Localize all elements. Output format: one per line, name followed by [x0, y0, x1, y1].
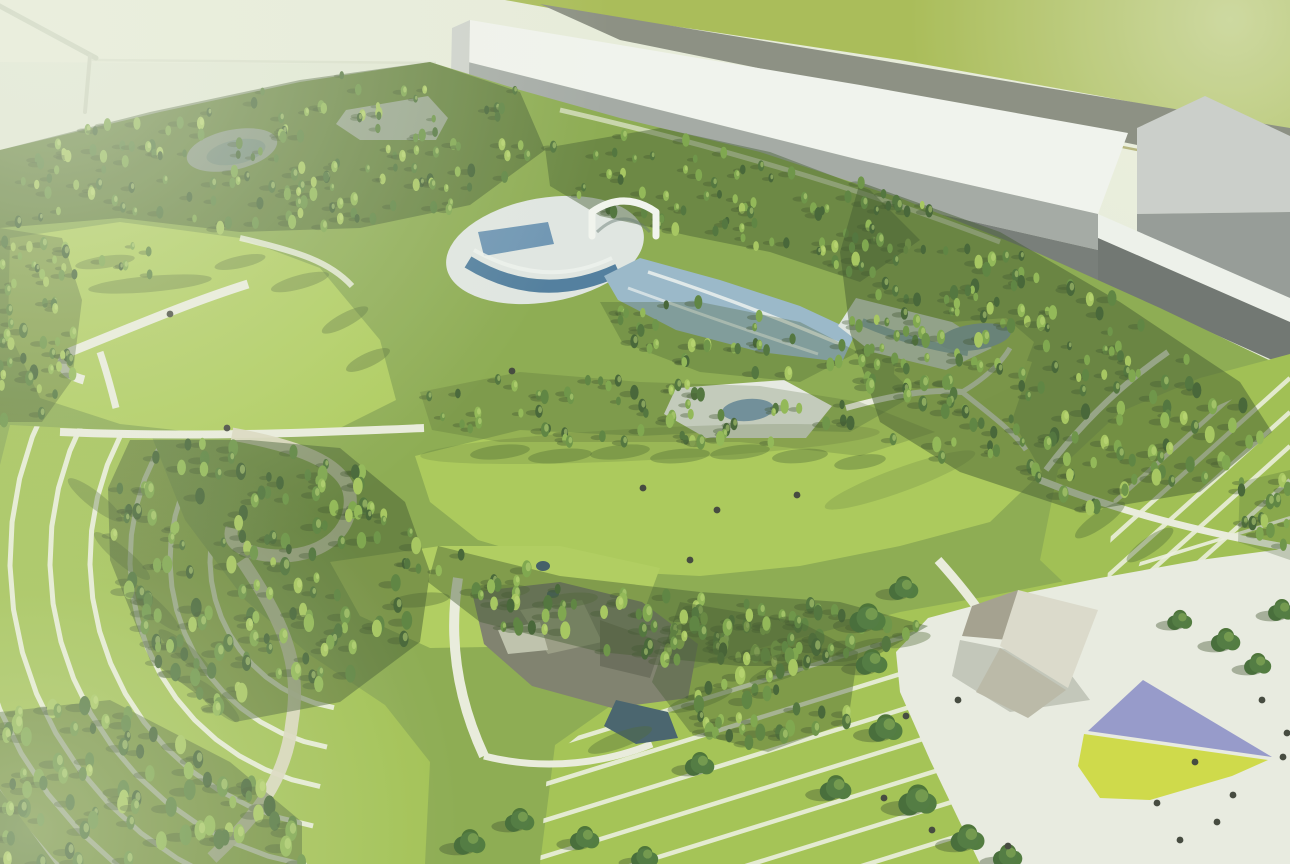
- scene-svg: [0, 0, 1290, 864]
- global-haze-wash: [0, 0, 1290, 864]
- aerial-park-rendering: [0, 0, 1290, 864]
